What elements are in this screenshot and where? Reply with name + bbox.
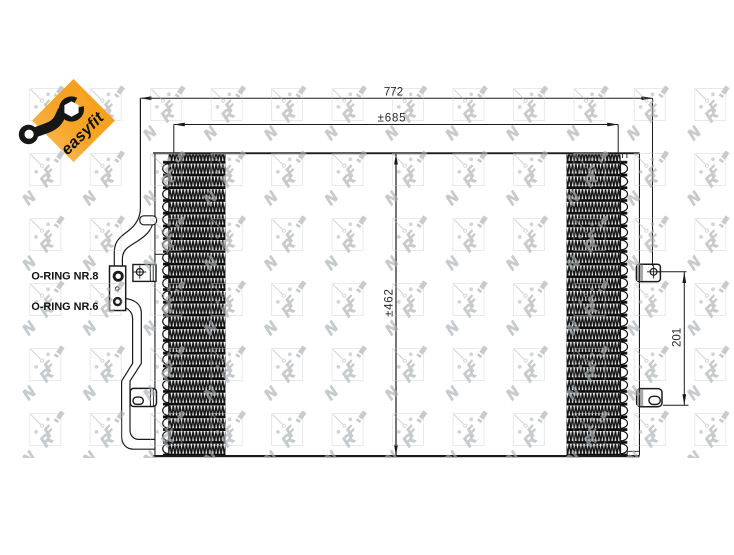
svg-text:±685: ±685: [378, 112, 407, 124]
svg-text:±462: ±462: [384, 288, 396, 317]
svg-text:772: 772: [384, 86, 403, 98]
svg-text:O-RING NR.6: O-RING NR.6: [31, 301, 98, 313]
svg-text:201: 201: [671, 328, 683, 347]
svg-text:O-RING NR.8: O-RING NR.8: [31, 271, 98, 283]
